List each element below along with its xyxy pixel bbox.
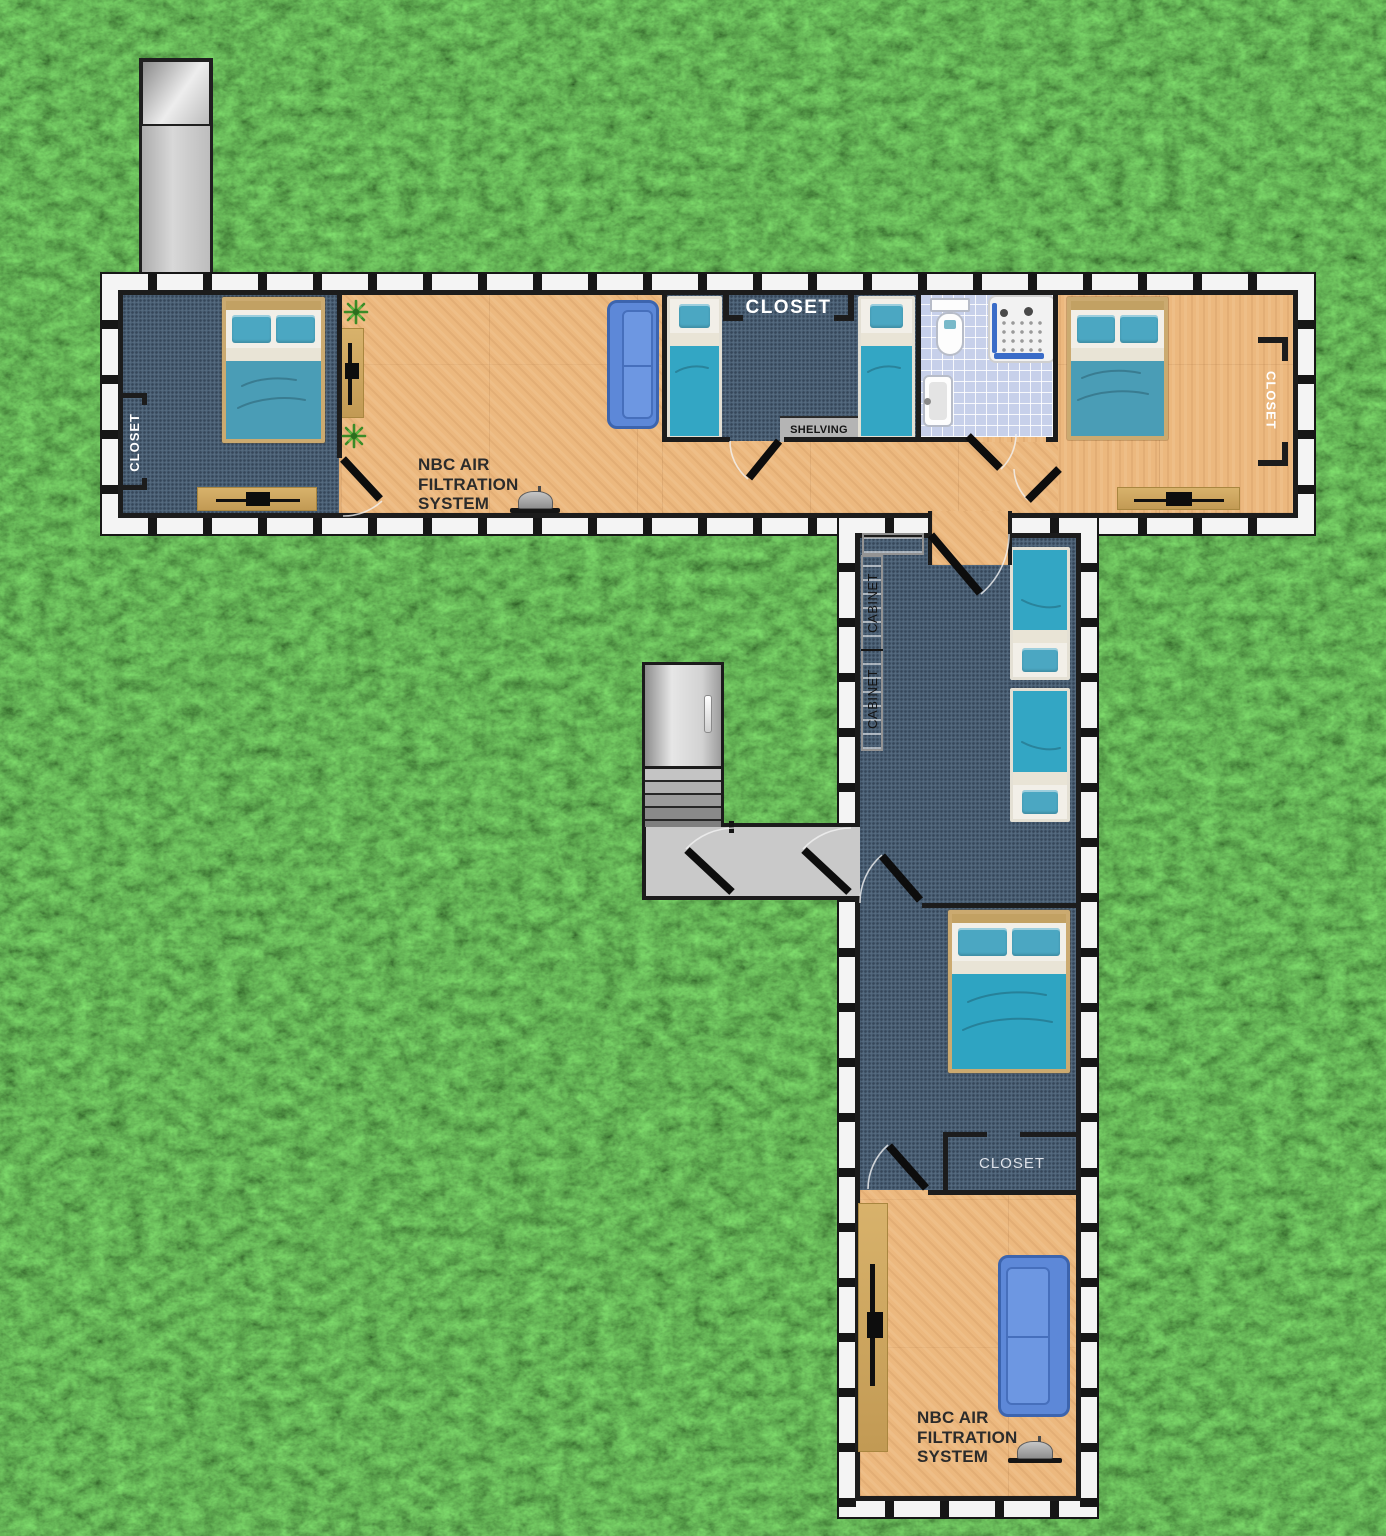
- shower-glass: [992, 303, 997, 353]
- living-couch: [998, 1255, 1070, 1417]
- living-media-console: [858, 1203, 888, 1452]
- bunk-bedroom-wall-bottom: [784, 437, 916, 442]
- junction-passage: [928, 511, 1012, 565]
- entry-corridor: [642, 823, 860, 900]
- cabinet-label-upper: CABINET: [859, 560, 885, 646]
- bathroom-wall-right: [1053, 295, 1058, 442]
- closet-recess-wall: [1258, 460, 1288, 466]
- shower: [988, 295, 1056, 363]
- bathroom-wall-bottom: [1046, 437, 1058, 442]
- closet-label-center: CLOSET: [723, 297, 854, 319]
- cabinet-top: [862, 533, 924, 555]
- hallway-couch: [607, 300, 659, 429]
- shower-glass-bottom: [994, 353, 1044, 359]
- tv-base: [246, 492, 270, 506]
- guest-bed: [1067, 297, 1168, 440]
- hallway-floor-lower: [662, 442, 1058, 513]
- tv-base: [1166, 492, 1192, 506]
- bunkroom-bedroom-wall: [922, 903, 1076, 908]
- corridor-wall-stub: [729, 821, 734, 833]
- bathroom-wall-left: [916, 295, 921, 441]
- cabinet-divider: [861, 649, 883, 651]
- bunk-bed-lower: [1010, 688, 1070, 822]
- guest-dresser-tv: [1117, 487, 1240, 510]
- toilet-bowl: [936, 312, 964, 356]
- bunk-bedroom-wall-bottom: [662, 437, 730, 442]
- vent-shaft: [139, 58, 213, 294]
- master-bed: [222, 297, 325, 443]
- entry-hatch: [642, 662, 724, 769]
- bunk-bed-upper: [1010, 547, 1070, 680]
- container-wall-edge: [102, 274, 119, 534]
- tv-base: [345, 363, 359, 379]
- bunk-bedroom-wall-left: [662, 295, 667, 441]
- closet-label-middle: CLOSET: [948, 1150, 1076, 1176]
- shower-knob: [1000, 309, 1008, 317]
- container-wall-edge: [1080, 517, 1097, 1517]
- tv-base: [867, 1312, 883, 1338]
- nbc-air-filtration-label-2: NBC AIR FILTRATION SYSTEM: [917, 1408, 1057, 1467]
- toilet-tank: [930, 298, 970, 312]
- twin-bed-right: [858, 296, 915, 439]
- container-wall-edge: [1297, 274, 1314, 534]
- closet-wall: [943, 1132, 987, 1137]
- master-bedroom-wall: [337, 295, 342, 458]
- hallway-tv-console: [340, 328, 364, 418]
- master-dresser-tv: [197, 487, 317, 511]
- vent-shaft-cap: [141, 60, 211, 126]
- container-wall-edge: [102, 274, 1314, 291]
- middle-bedroom-bed: [948, 910, 1070, 1073]
- shower-knob: [1024, 307, 1033, 316]
- entry-stairs: [642, 769, 724, 827]
- hatch-handle: [704, 695, 712, 733]
- nbc-air-filtration-label: NBC AIR FILTRATION SYSTEM: [418, 455, 558, 514]
- closet-label-left: CLOSET: [121, 398, 147, 486]
- toilet-flush: [944, 320, 956, 329]
- bathroom-wall-bottom: [916, 437, 973, 442]
- shower-drain-holes: [1002, 321, 1046, 353]
- twin-bed-left: [667, 296, 722, 439]
- container-wall-edge: [102, 517, 1314, 534]
- closet-label-right: CLOSET: [1257, 350, 1285, 450]
- cabinet-label-lower: CABINET: [859, 654, 885, 744]
- container-wall-edge: [839, 1500, 1097, 1517]
- sink-faucet: [924, 398, 931, 405]
- container-wall-edge: [839, 517, 856, 1517]
- bed-pillows: [226, 310, 321, 348]
- bunker-floor-plan: CLOSET CLOSET SHELVING: [0, 0, 1386, 1536]
- bedroom-living-wall: [928, 1190, 1076, 1195]
- sink-basin: [929, 382, 947, 420]
- sink: [923, 375, 953, 427]
- closet-wall: [1020, 1132, 1076, 1137]
